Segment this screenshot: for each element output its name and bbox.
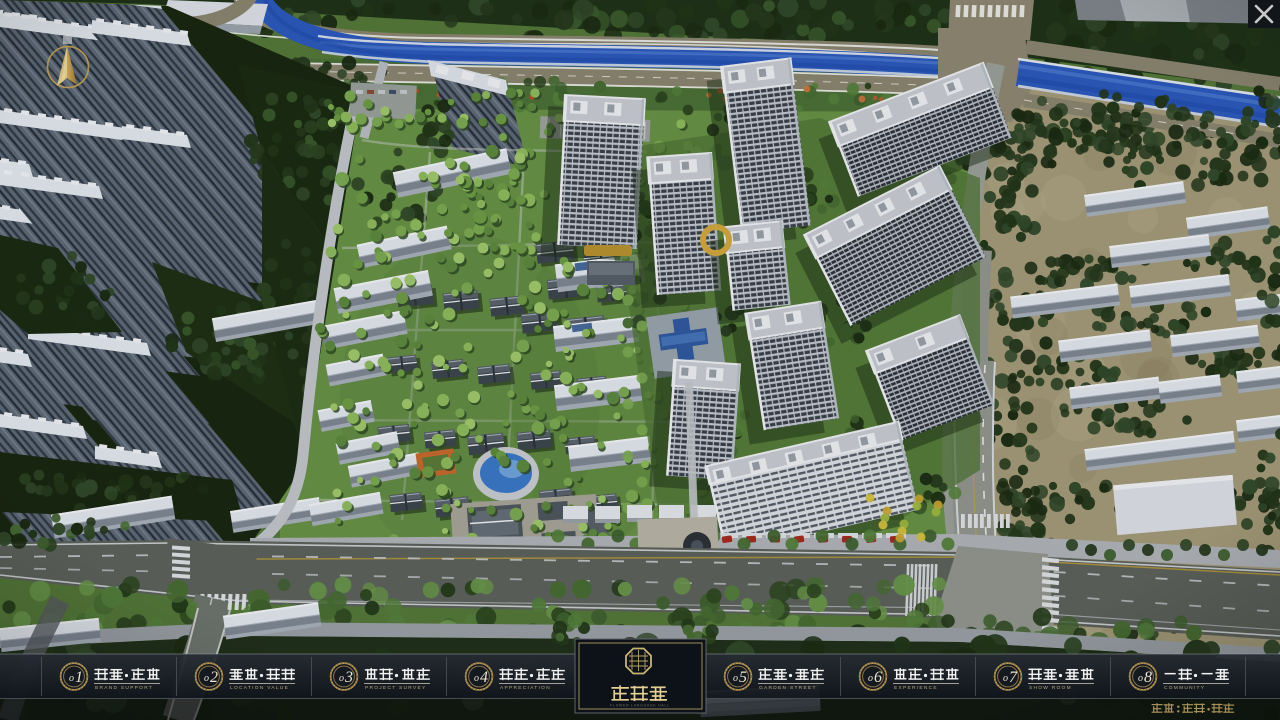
- svg-text:SHOW ROOM: SHOW ROOM: [1029, 685, 1072, 691]
- svg-text:1: 1: [75, 669, 83, 686]
- svg-text:6: 6: [874, 669, 882, 686]
- svg-text:7: 7: [1009, 669, 1018, 686]
- svg-text:8: 8: [1144, 669, 1152, 686]
- svg-text:o: o: [868, 673, 873, 684]
- svg-text:FLOWER LANGUAGE HALL: FLOWER LANGUAGE HALL: [610, 704, 670, 708]
- svg-text:3: 3: [344, 669, 353, 686]
- svg-text:LOCATION VALUE: LOCATION VALUE: [230, 685, 289, 691]
- svg-text:PROJECT SURVEY: PROJECT SURVEY: [365, 685, 426, 691]
- svg-text:o: o: [69, 673, 74, 684]
- svg-text:o: o: [1138, 673, 1143, 684]
- svg-text:COMMUNITY: COMMUNITY: [1164, 685, 1205, 691]
- svg-text:o: o: [733, 673, 738, 684]
- svg-text:o: o: [1003, 673, 1008, 684]
- svg-text:GARDEN STREET: GARDEN STREET: [759, 685, 817, 691]
- svg-text:o: o: [474, 673, 479, 684]
- svg-text:o: o: [204, 673, 209, 684]
- svg-text:BRAND SUPPORT: BRAND SUPPORT: [95, 685, 153, 691]
- svg-text:EXPERIENCE: EXPERIENCE: [894, 685, 938, 691]
- svg-text:o: o: [339, 673, 344, 684]
- svg-text:2: 2: [210, 669, 218, 686]
- svg-text:4: 4: [480, 669, 488, 686]
- svg-text:APPRECIATION: APPRECIATION: [500, 685, 551, 691]
- svg-text:5: 5: [739, 669, 747, 686]
